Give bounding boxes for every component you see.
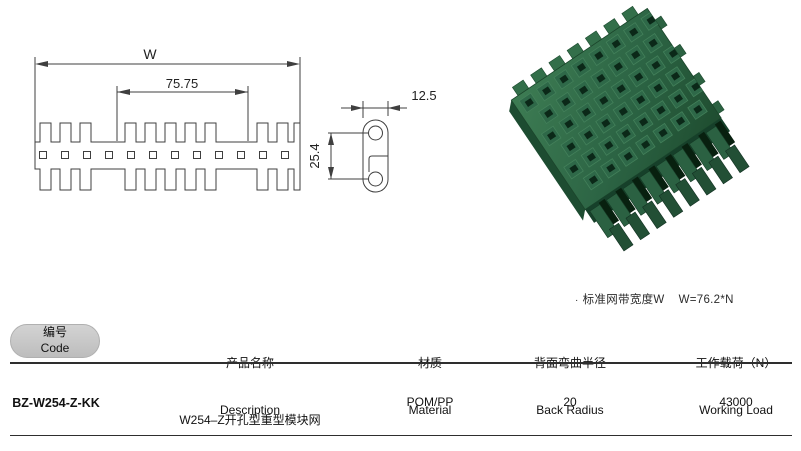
cell-code: BZ-W254-Z-KK — [12, 395, 100, 411]
dimension-arrows — [35, 61, 400, 179]
table-bottom-rule — [10, 435, 792, 436]
cell-description-zh: W254–Z开孔型重型模块网 — [146, 413, 354, 429]
dim-label-width: 12.5 — [411, 88, 436, 103]
cell-description: W254–Z开孔型重型模块网 W254–Z Heavy Module Belt … — [146, 382, 354, 451]
cell-working-load: 43000 — [719, 395, 752, 411]
dim-label-inner: 75.75 — [166, 76, 199, 91]
dim-label-w: W — [143, 46, 157, 62]
table-header-rule — [10, 362, 792, 364]
column-header-working-load: 工作载荷（N） Working Load — [696, 325, 777, 450]
column-header-code-zh: 编号 — [43, 325, 67, 341]
cell-back-radius: 20 — [563, 395, 576, 411]
product-photo — [495, 0, 801, 265]
spec-table: 编号 Code 产品名称 Description 材质 Material 背面弯… — [10, 322, 792, 442]
belt-hole-squares — [40, 152, 289, 159]
column-header-material: 材质 Material — [409, 325, 452, 450]
note-formula: W=76.2*N — [679, 294, 734, 306]
technical-drawing: W 75.75 12.5 25.4 — [0, 30, 470, 240]
column-header-code: 编号 Code — [10, 324, 100, 358]
column-header-code-en: Code — [41, 341, 70, 357]
note-bullet: · — [575, 295, 579, 306]
column-header-back-radius: 背面弯曲半径 Back Radius — [534, 325, 606, 450]
note-label: 标准网带宽度W — [583, 294, 665, 306]
catalog-page: W 75.75 12.5 25.4 — [0, 0, 801, 451]
dim-label-height: 25.4 — [307, 143, 322, 168]
cell-material: POM/PP — [407, 395, 454, 411]
side-view — [328, 101, 407, 192]
standard-width-note: ·标准网带宽度WW=76.2*N — [561, 279, 734, 319]
